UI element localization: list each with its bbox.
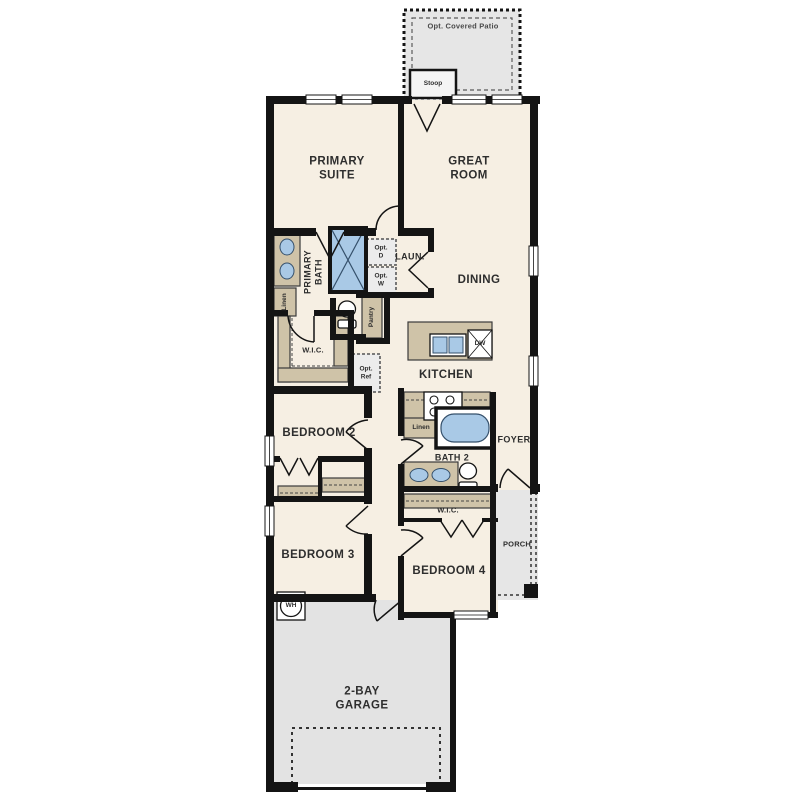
patio-area bbox=[404, 10, 520, 98]
garage-floor bbox=[274, 600, 452, 784]
sink-basin bbox=[433, 337, 447, 353]
sink-icon bbox=[432, 469, 450, 482]
window-icon bbox=[529, 246, 538, 276]
garage-area bbox=[274, 600, 452, 784]
window-icon bbox=[306, 95, 336, 104]
wic1-shelf-bottom bbox=[278, 368, 348, 382]
window-icon bbox=[265, 506, 274, 536]
opt-washer-box bbox=[366, 267, 396, 293]
floorplan-canvas: Opt. Covered Patio Stoop PRIMARY SUITE G… bbox=[0, 0, 810, 810]
floorplan-drawing bbox=[0, 0, 810, 810]
opt-dryer-box bbox=[366, 239, 396, 265]
sink-icon bbox=[410, 469, 428, 482]
porch-post bbox=[524, 584, 538, 598]
sink-basin bbox=[449, 337, 463, 353]
stoop-outline bbox=[410, 70, 456, 98]
sink-icon bbox=[280, 263, 294, 279]
window-icon bbox=[452, 95, 486, 104]
window-icon bbox=[529, 356, 538, 386]
window-icon bbox=[342, 95, 372, 104]
sink-icon bbox=[280, 239, 294, 255]
dishwasher-icon bbox=[468, 330, 492, 358]
tub-icon bbox=[436, 408, 494, 448]
window-icon bbox=[454, 611, 488, 619]
pantry-cabinet bbox=[362, 296, 382, 338]
window-icon bbox=[492, 95, 522, 104]
bath2-linen-cabinet bbox=[404, 418, 438, 438]
window-icon bbox=[265, 436, 274, 466]
porch-area bbox=[496, 490, 538, 600]
toilet-icon bbox=[459, 463, 477, 490]
